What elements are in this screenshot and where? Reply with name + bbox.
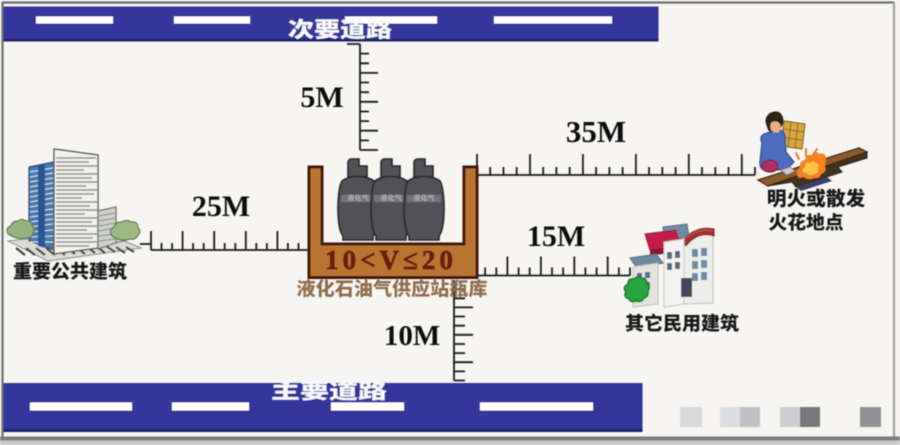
svg-text:25M: 25M xyxy=(192,190,250,223)
svg-text:5M: 5M xyxy=(300,81,343,114)
svg-text:15M: 15M xyxy=(527,220,585,253)
svg-text:35M: 35M xyxy=(566,114,626,149)
svg-text:10<V≤20: 10<V≤20 xyxy=(325,245,457,275)
svg-text:10M: 10M xyxy=(384,320,440,352)
